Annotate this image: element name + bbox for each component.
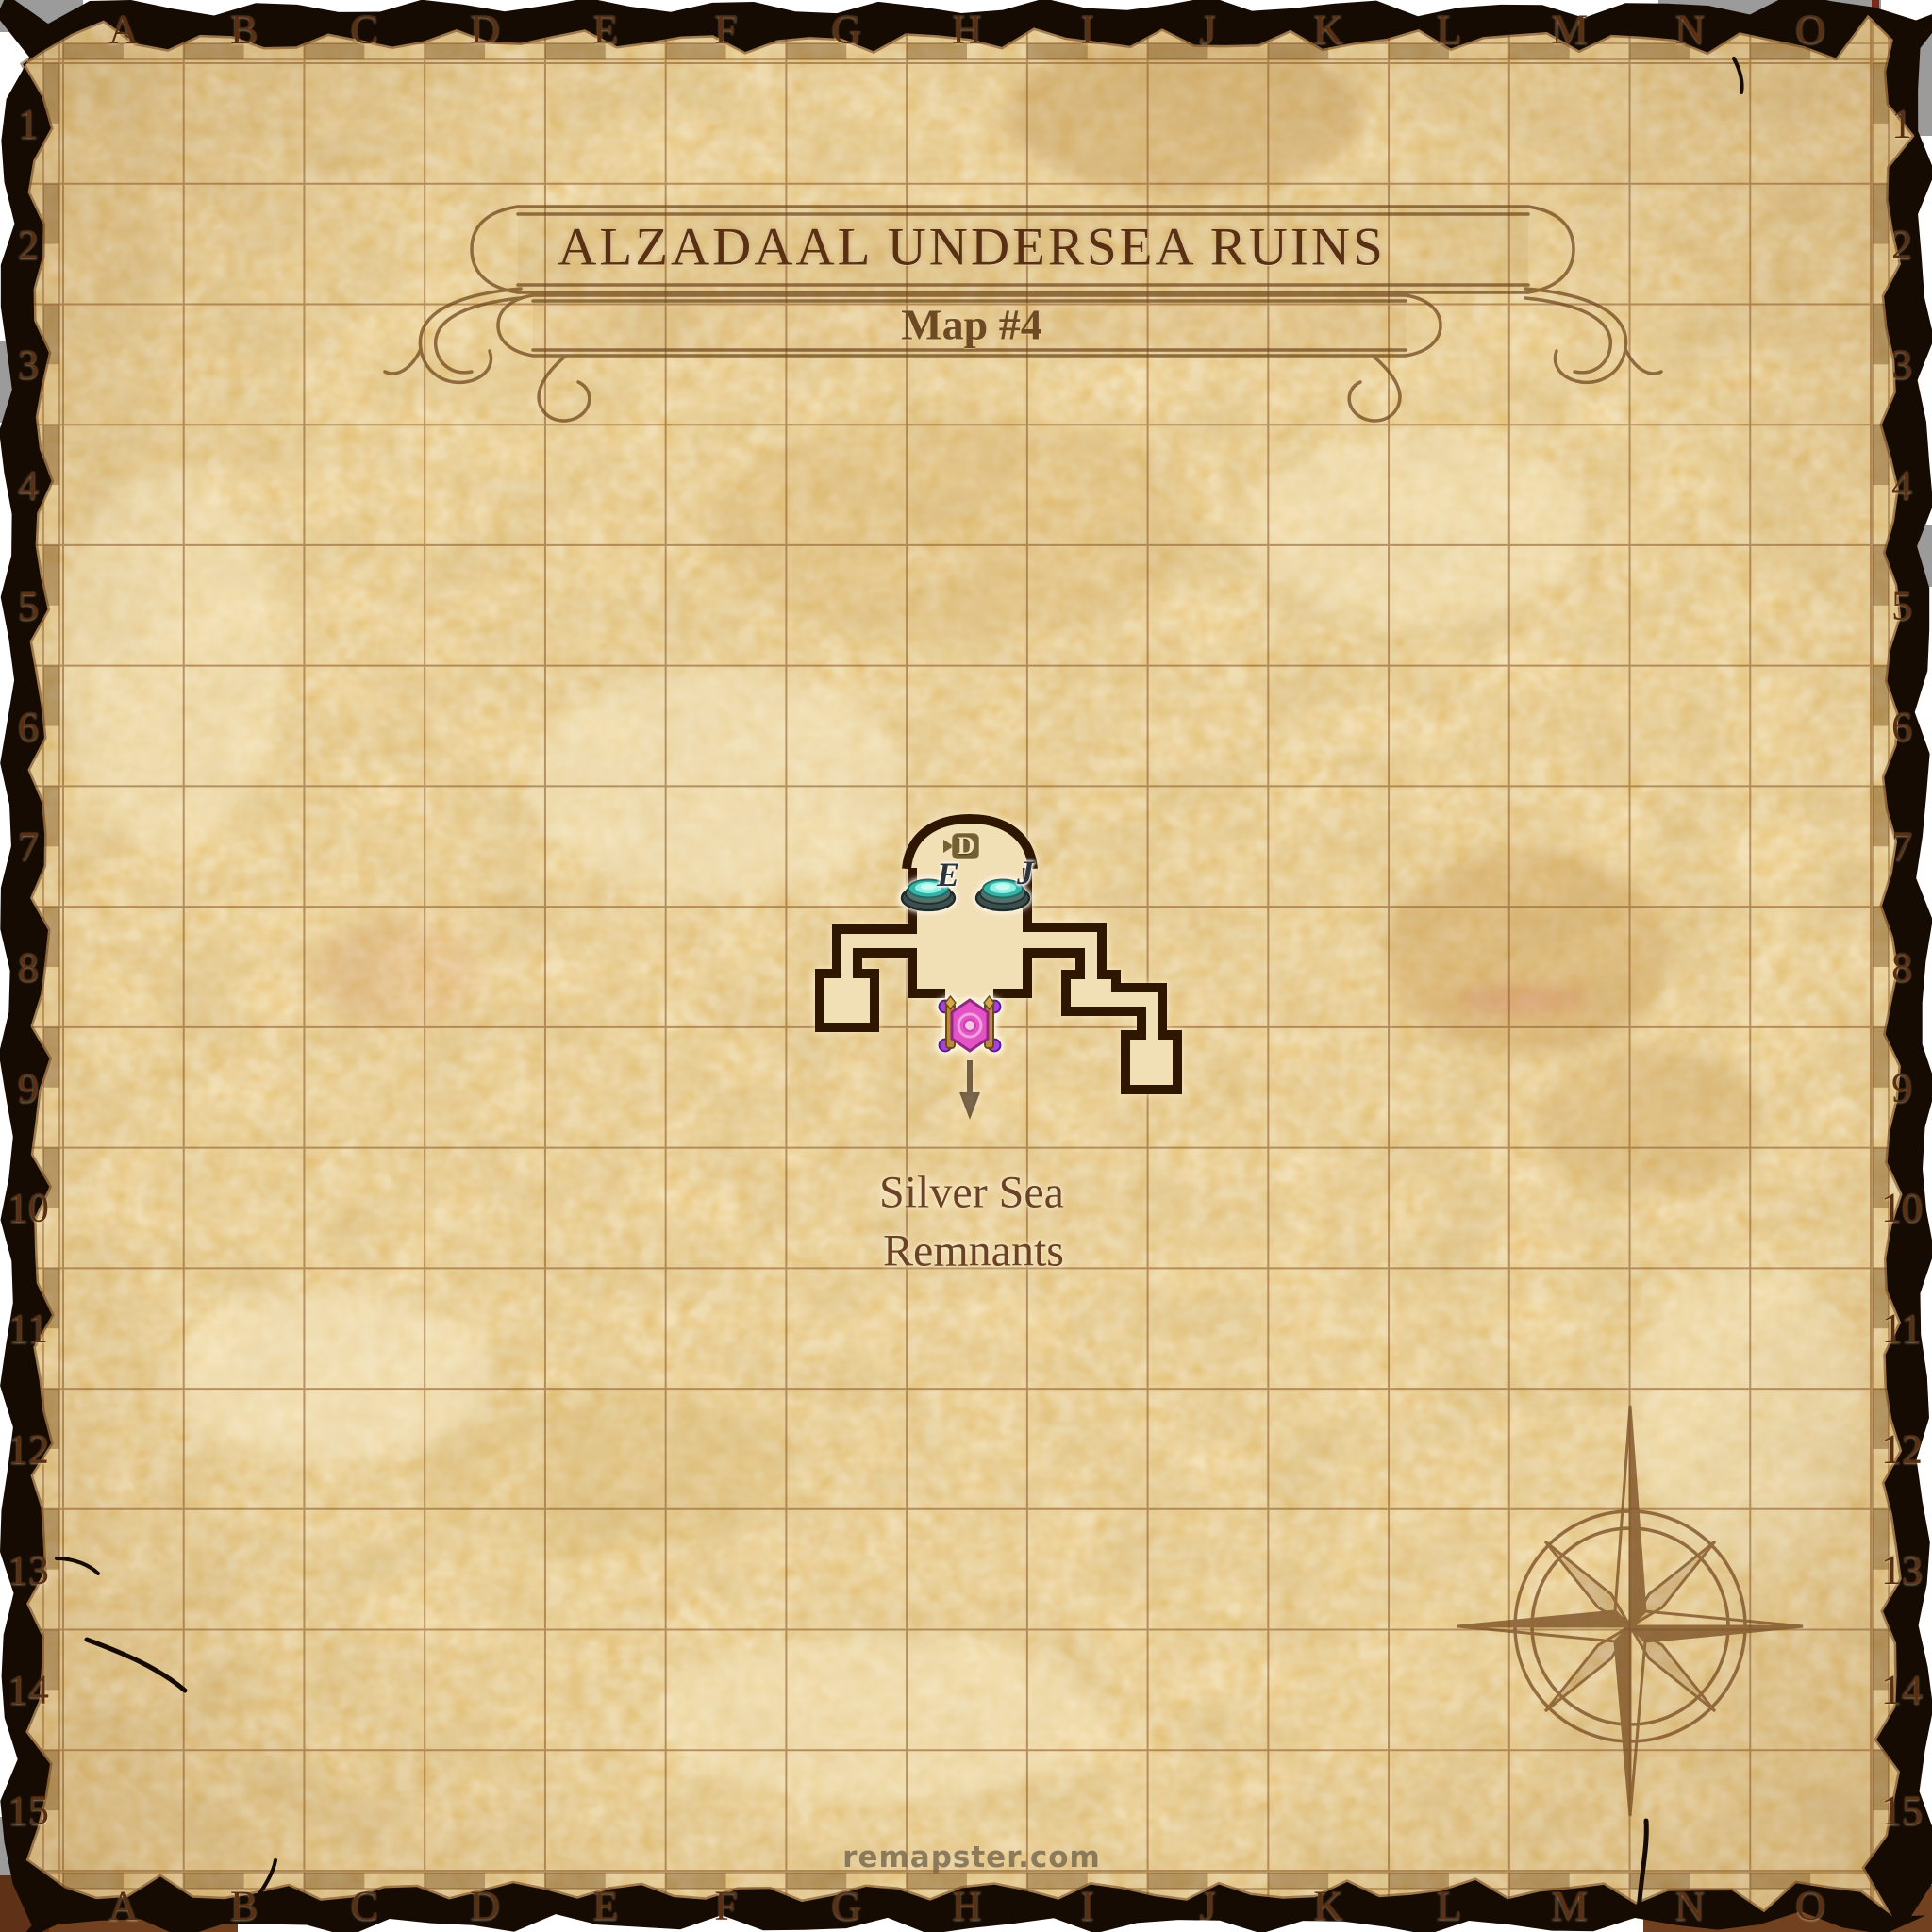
grid-col-label-bottom: B [230,1882,258,1930]
grid-col-label-bottom: M [1551,1882,1588,1930]
grid-col-label-bottom: E [592,1882,618,1930]
grid-row-label-left: 11 [8,1305,48,1353]
grid-row-label-right: 6 [1891,702,1912,750]
grid-col-label-bottom: D [470,1882,500,1930]
grid-row-label-right: 15 [1881,1787,1923,1835]
map-artwork [0,0,1932,1932]
grid-col-label-bottom: C [351,1882,378,1930]
grid-col-label-top: A [108,6,139,54]
grid-row-label-left: 7 [18,823,39,871]
grid-col-label-bottom: A [108,1882,139,1930]
grid-row-label-right: 8 [1891,942,1912,991]
grid-row-label-left: 2 [18,220,39,268]
grid-row-label-left: 13 [8,1545,49,1593]
grid-col-label-top: F [714,6,737,54]
grid-col-label-top: D [470,6,500,54]
grid-row-label-right: 2 [1891,220,1912,268]
grid-col-label-bottom: K [1313,1882,1343,1930]
grid-col-label-top: O [1795,6,1825,54]
grid-col-label-bottom: G [831,1882,861,1930]
grid-row-label-right: 1 [1891,99,1912,147]
parchment-paper [0,0,1932,1932]
grid-row-label-right: 4 [1891,461,1912,509]
grid-col-label-bottom: H [952,1882,982,1930]
grid-col-label-top: N [1675,6,1706,54]
grid-row-label-right: 3 [1891,341,1912,389]
grid-col-label-bottom: L [1436,1882,1461,1930]
pad-label-j: J [1017,853,1034,892]
grid-row-label-right: 14 [1881,1666,1923,1714]
grid-col-label-top: G [831,6,861,54]
grid-col-label-bottom: N [1675,1882,1706,1930]
grid-row-label-left: 5 [18,581,39,629]
grid-col-label-top: I [1080,6,1094,54]
grid-row-label-left: 12 [8,1424,49,1473]
grid-row-label-right: 12 [1881,1424,1923,1473]
grid-row-label-right: 7 [1891,823,1912,871]
area-label-line2: Remnants [883,1225,1064,1277]
map-canvas: ALZADAAL UNDERSEA RUINS Map #4 Silver Se… [0,0,1932,1932]
grid-col-label-bottom: O [1795,1882,1825,1930]
grid-row-label-left: 6 [18,702,39,750]
grid-col-label-bottom: I [1080,1882,1094,1930]
area-label-line1: Silver Sea [879,1167,1064,1219]
grid-row-label-left: 3 [18,341,39,389]
grid-col-label-top: J [1200,6,1216,54]
grid-col-label-top: C [351,6,378,54]
grid-row-label-left: 9 [18,1063,39,1111]
grid-row-label-right: 13 [1881,1545,1923,1593]
watermark: remapster.com [842,1840,1101,1874]
grid-row-label-right: 5 [1891,581,1912,629]
map-number: Map #4 [901,300,1042,350]
grid-row-label-left: 1 [18,99,39,147]
grid-col-label-top: M [1551,6,1588,54]
grid-col-label-bottom: J [1200,1882,1216,1930]
grid-row-label-left: 8 [18,942,39,991]
grid-row-label-left: 15 [8,1787,49,1835]
map-title: ALZADAAL UNDERSEA RUINS [558,217,1386,278]
grid-col-label-top: L [1436,6,1461,54]
grid-row-label-left: 10 [8,1184,49,1232]
grid-row-label-left: 14 [8,1666,49,1714]
grid-col-label-top: H [952,6,982,54]
grid-row-label-right: 10 [1881,1184,1923,1232]
grid-col-label-top: B [230,6,258,54]
grid-row-label-left: 4 [18,461,39,509]
grid-col-label-top: K [1313,6,1343,54]
door-label: D [958,832,975,860]
grid-row-label-right: 11 [1882,1305,1922,1353]
grid-col-label-top: E [592,6,618,54]
teleporter-icon [940,996,1001,1052]
grid-col-label-bottom: F [714,1882,737,1930]
grid-row-label-right: 9 [1891,1063,1912,1111]
pad-label-e: E [937,855,959,894]
